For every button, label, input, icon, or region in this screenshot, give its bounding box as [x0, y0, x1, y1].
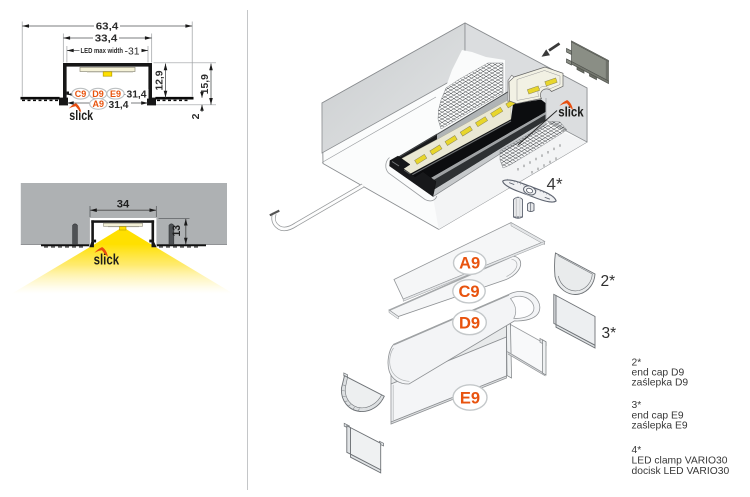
svg-text:zaślepka D9: zaślepka D9: [632, 378, 689, 389]
svg-text:31,4: 31,4: [127, 89, 147, 100]
svg-text:2: 2: [190, 113, 202, 119]
svg-text:E9: E9: [460, 389, 480, 407]
svg-text:C9: C9: [75, 89, 87, 99]
svg-text:13: 13: [171, 225, 183, 237]
svg-text:33,4: 33,4: [95, 33, 118, 45]
svg-text:4*: 4*: [632, 445, 642, 456]
svg-text:-31: -31: [125, 45, 140, 57]
svg-text:zaślepka E9: zaślepka E9: [632, 421, 688, 432]
svg-text:LED max width: LED max width: [81, 46, 124, 55]
svg-text:A9: A9: [93, 99, 105, 109]
svg-text:D9: D9: [92, 89, 104, 99]
svg-text:34: 34: [117, 198, 130, 210]
svg-text:63,4: 63,4: [96, 21, 119, 33]
svg-text:12,9: 12,9: [153, 70, 165, 90]
svg-text:4*: 4*: [547, 175, 563, 194]
svg-text:15,9: 15,9: [199, 74, 211, 94]
svg-text:3*: 3*: [602, 325, 617, 342]
svg-text:A9: A9: [459, 255, 480, 273]
svg-text:docisk LED VARIO30: docisk LED VARIO30: [632, 466, 730, 477]
svg-text:2*: 2*: [601, 273, 616, 290]
svg-text:D9: D9: [459, 314, 480, 332]
svg-text:slick: slick: [69, 108, 93, 123]
svg-text:31,4: 31,4: [109, 100, 129, 111]
svg-text:E9: E9: [110, 89, 121, 99]
svg-text:C9: C9: [458, 283, 479, 301]
